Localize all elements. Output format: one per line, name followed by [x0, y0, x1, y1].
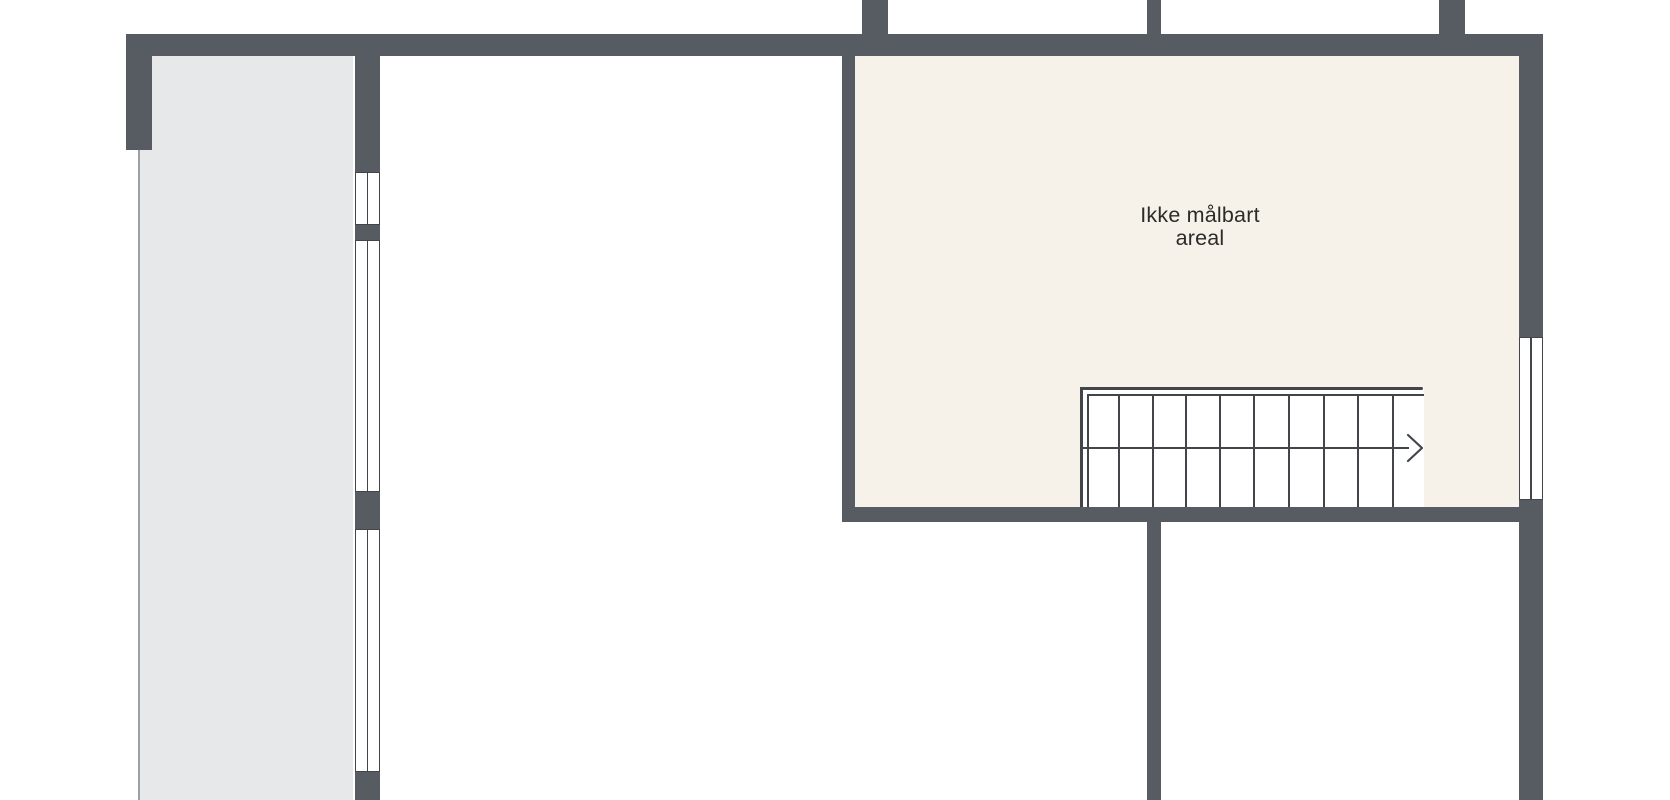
- window-glass-line: [367, 241, 369, 491]
- window-glass-line: [1530, 338, 1532, 499]
- stair-tread: [1357, 396, 1359, 507]
- wall-stub-1: [862, 0, 888, 34]
- stair-tread: [1392, 396, 1394, 507]
- top-exterior-wall: [126, 34, 1543, 56]
- stair-outer-top-line: [1080, 387, 1423, 390]
- unmeasurable-area-left-wall: [842, 56, 855, 522]
- room-label: Ikke målbart areal: [1040, 204, 1360, 250]
- unmeasurable-area-bottom-wall: [842, 507, 1543, 522]
- stair-walkline: [1082, 447, 1409, 449]
- stair-inner-top-line: [1087, 394, 1424, 396]
- window-right: [1519, 337, 1543, 500]
- open-area-boundary-line: [138, 150, 140, 800]
- wall-stub-2: [1147, 0, 1161, 34]
- staircase: [1080, 387, 1424, 507]
- window-left-1: [355, 172, 380, 225]
- stair-tread: [1152, 396, 1154, 507]
- stair-tread: [1288, 396, 1290, 507]
- stair-tread: [1323, 396, 1325, 507]
- window-glass-line: [367, 530, 369, 771]
- open-area-room: [140, 56, 353, 800]
- window-glass-line: [367, 173, 369, 224]
- stair-tread: [1253, 396, 1255, 507]
- wall-stub-3: [1439, 0, 1465, 34]
- window-left-2: [355, 240, 380, 492]
- stair-tread: [1219, 396, 1221, 507]
- stair-tread: [1118, 396, 1120, 507]
- floor-plan: Ikke målbart areal: [0, 0, 1670, 800]
- left-exterior-wall: [126, 34, 152, 150]
- stair-direction-arrow-icon: [1406, 433, 1426, 463]
- stair-inner-left-line: [1087, 394, 1089, 507]
- stair-tread: [1185, 396, 1187, 507]
- lower-partition-wall: [1147, 522, 1161, 800]
- window-left-3: [355, 529, 380, 772]
